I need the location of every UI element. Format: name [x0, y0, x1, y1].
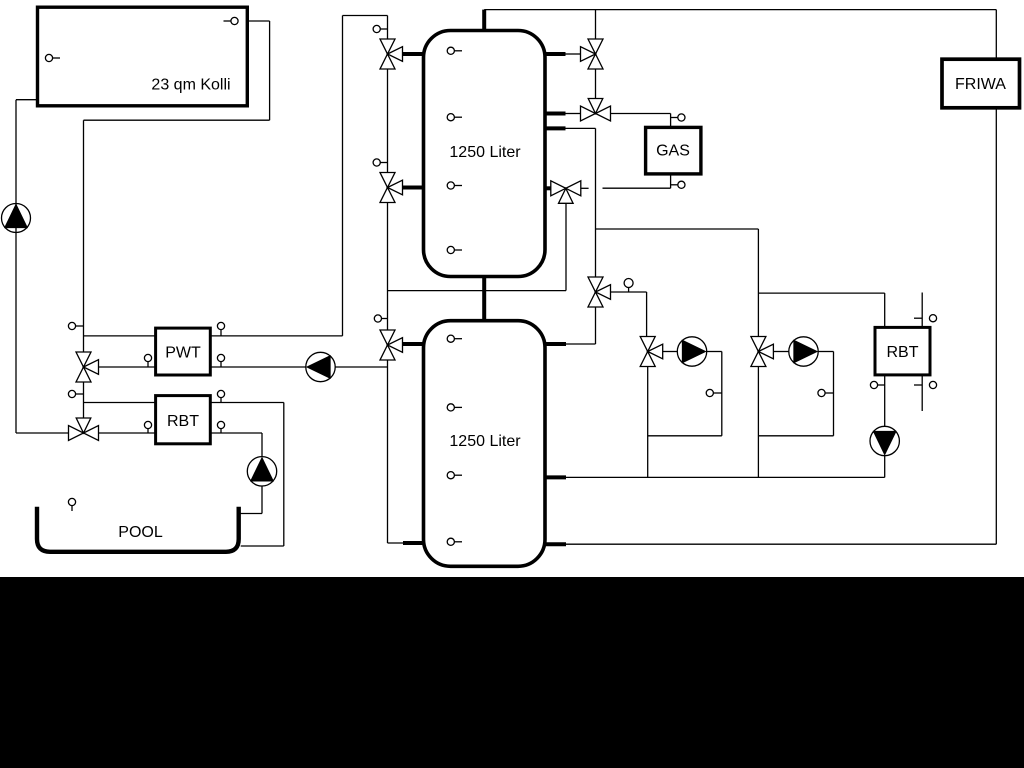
svg-text:GAS: GAS [656, 143, 690, 160]
svg-text:RBT: RBT [167, 413, 199, 430]
svg-text:1250 Liter: 1250 Liter [449, 433, 521, 450]
svg-text:RBT: RBT [887, 344, 919, 361]
svg-text:POOL: POOL [118, 524, 163, 541]
svg-text:FRIWA: FRIWA [955, 76, 1006, 93]
svg-text:PWT: PWT [165, 345, 201, 362]
svg-text:1250 Liter: 1250 Liter [449, 144, 521, 161]
svg-text:23 qm Kolli: 23 qm Kolli [151, 77, 230, 94]
